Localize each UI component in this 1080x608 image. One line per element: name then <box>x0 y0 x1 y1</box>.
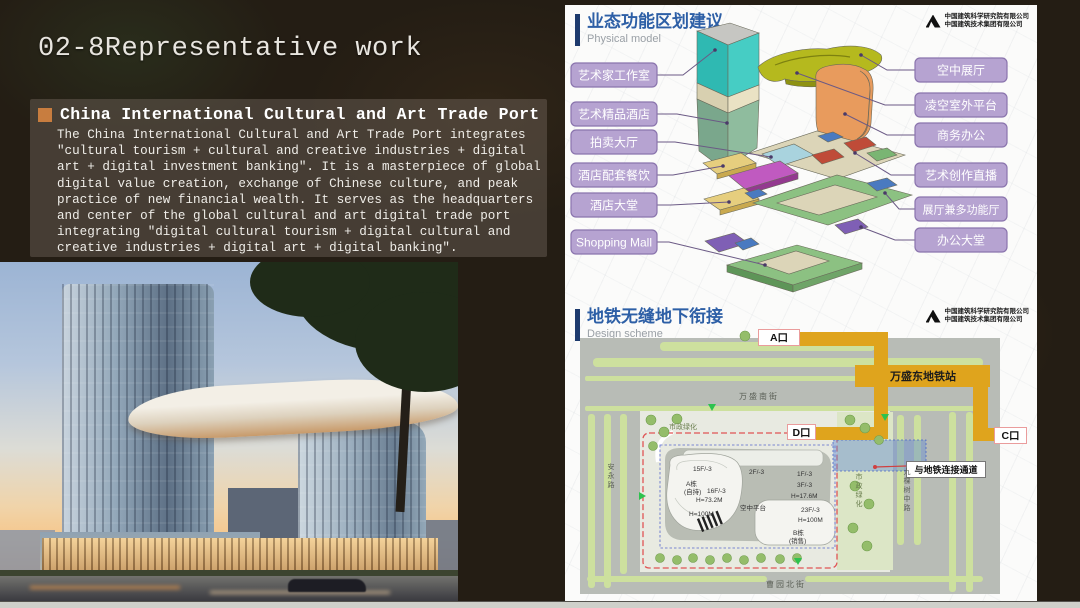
model-label-business-office: 商务办公 <box>915 123 1007 147</box>
green-area-label: 市政绿化 <box>853 473 863 509</box>
section-heading-row: China International Cultural and Art Tra… <box>38 105 539 124</box>
exit-a-label: A口 <box>758 329 800 346</box>
svg-text:酒店大堂: 酒店大堂 <box>590 199 638 213</box>
annotation-a-floors: 15F/-3 <box>693 466 712 473</box>
annotation-3f: 3F/-3 <box>797 482 812 489</box>
building-photo <box>0 262 458 601</box>
street-south-label: 曹园北街 <box>766 579 806 590</box>
physical-model-diagram: 艺术家工作室 艺术精品酒店 拍卖大厅 酒店配套餐饮 酒店大堂 Shopping … <box>565 5 1037 297</box>
model-label-art-livestream: 艺术创作直播 <box>915 163 1007 187</box>
model-label-office-lobby: 办公大堂 <box>915 228 1007 252</box>
svg-text:办公大堂: 办公大堂 <box>937 233 985 248</box>
page-title: 02-8Representative work <box>38 34 558 64</box>
annotation-sky-platform: 空中平台 <box>740 502 766 512</box>
annotation-a-height2: H=100M <box>689 511 714 518</box>
street-north-label: 万盛南街 <box>739 391 779 402</box>
annotation-podium-height: H=17.6M <box>791 493 818 500</box>
info-panel: China International Cultural and Art Tra… <box>30 99 547 257</box>
presentation-slide: 02-8Representative work China Internatio… <box>0 0 1080 608</box>
annotation-a-floors2: 16F/-3 <box>707 488 726 495</box>
slide-bottom-strip <box>0 601 1080 608</box>
model-label-auction-hall: 拍卖大厅 <box>571 130 657 154</box>
model-label-shopping-mall: Shopping Mall <box>571 230 657 254</box>
annotation-a-height: H=73.2M <box>696 497 723 504</box>
model-label-aerial-terrace: 凌空室外平台 <box>915 93 1007 117</box>
svg-text:酒店配套餐饮: 酒店配套餐饮 <box>578 168 650 183</box>
photo-podium <box>42 538 438 574</box>
svg-text:艺术家工作室: 艺术家工作室 <box>578 68 650 83</box>
svg-text:Shopping Mall: Shopping Mall <box>576 236 652 250</box>
annotation-b-height: H=100M <box>798 517 823 524</box>
svg-text:凌空室外平台: 凌空室外平台 <box>925 98 997 113</box>
svg-text:商务办公: 商务办公 <box>937 128 985 143</box>
exit-d-label: D口 <box>787 424 816 440</box>
annotation-2f: 2F/-3 <box>749 469 764 476</box>
metro-station-label: 万盛东地铁站 <box>881 368 965 384</box>
section-body: The China International Cultural and Art… <box>57 127 544 257</box>
metro-connection-label: 与地铁连接通道 <box>906 461 986 478</box>
street-east-label: 九棵树中路 <box>901 468 911 513</box>
model-label-multifunction-hall: 展厅兼多功能厅 <box>915 197 1007 221</box>
right-panel: 业态功能区划建议 Physical model 中国建筑科学研究院有限公司 中国… <box>565 5 1037 601</box>
annotation-1f: 1F/-3 <box>797 471 812 478</box>
site-plan-diagram <box>565 300 1037 604</box>
light-streak <box>30 586 180 589</box>
model-label-boutique-hotel: 艺术精品酒店 <box>571 102 657 126</box>
podium-glazing <box>42 538 438 574</box>
model-label-artist-studio: 艺术家工作室 <box>571 63 657 87</box>
svg-text:艺术创作直播: 艺术创作直播 <box>925 169 997 183</box>
annotation-a-hold: (自持) <box>684 486 701 496</box>
section-heading: China International Cultural and Art Tra… <box>60 105 539 124</box>
exit-c-label: C口 <box>994 427 1027 444</box>
annotation-b-sale: (销售) <box>789 535 806 545</box>
svg-text:展厅兼多功能厅: 展厅兼多功能厅 <box>923 203 1000 217</box>
svg-text:空中展厅: 空中展厅 <box>937 63 985 78</box>
street-west-label: 安永路 <box>605 463 615 490</box>
model-label-hotel-dining: 酒店配套餐饮 <box>571 163 657 187</box>
exploded-model <box>697 23 912 292</box>
svg-text:拍卖大厅: 拍卖大厅 <box>590 135 638 150</box>
model-label-hotel-lobby: 酒店大堂 <box>571 193 657 217</box>
svg-text:艺术精品酒店: 艺术精品酒店 <box>578 108 650 122</box>
annotation-b-floors: 23F/-3 <box>801 507 820 514</box>
photo-car <box>288 579 366 592</box>
green-area-label: 市政绿化 <box>669 422 697 432</box>
orange-bullet-icon <box>38 108 52 122</box>
model-label-sky-gallery: 空中展厅 <box>915 58 1007 82</box>
